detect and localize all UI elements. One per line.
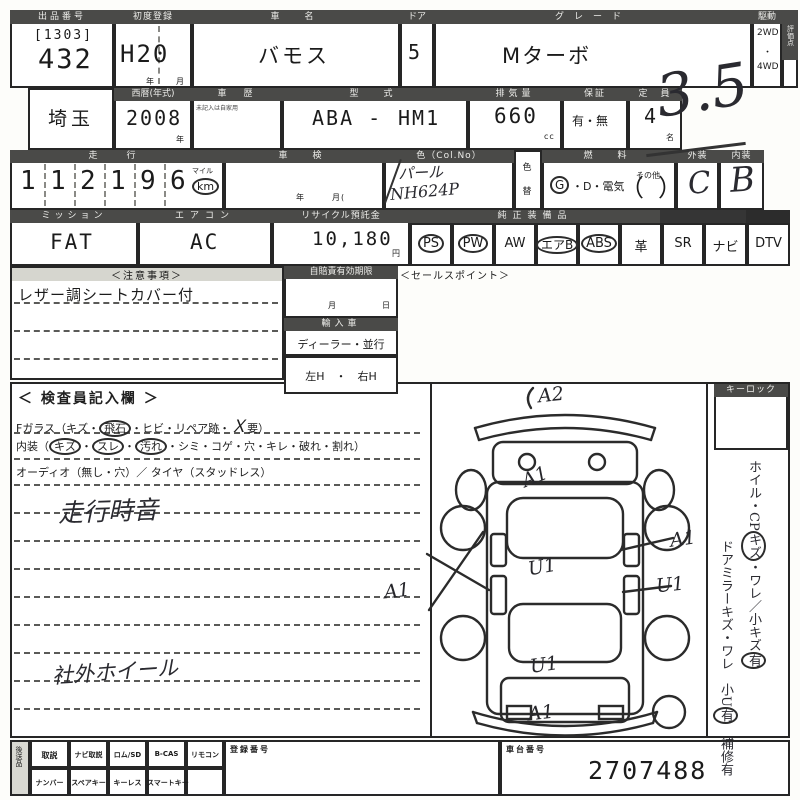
annotation-u1-right: U1 (655, 573, 685, 598)
grade-header: グレード (434, 10, 752, 24)
odometer-digit-4: 1 (110, 166, 128, 196)
import-value: ディーラー・並行 (284, 336, 398, 352)
mileage-header: 走 行 (10, 150, 224, 163)
prefecture-value: 埼玉 (48, 104, 94, 131)
rear-left-wheel (441, 616, 485, 660)
displacement-value: 660 (494, 104, 538, 128)
a2-paren-stroke (528, 388, 533, 408)
insurance-month: 月 (328, 300, 337, 311)
first-registration-header: 初度登録 (114, 10, 192, 24)
history-header: 車 歴 (192, 88, 282, 101)
equipment-header: 純正装備品 (410, 210, 660, 223)
odometer-digit-1: 1 (20, 166, 38, 196)
lot-header: 出品番号 (10, 10, 114, 24)
glass-line-mid: ・ヒビ・リペア跡・ (131, 422, 230, 435)
insurance-day: 日 (382, 300, 391, 311)
door-value: 5 (408, 40, 422, 64)
model-code-prefix: ABA - (312, 106, 382, 130)
recycle-fee-header: リサイクル預託金 (272, 210, 410, 223)
odometer-digit-5: 9 (140, 166, 158, 196)
annotation-u1-rear: U1 (529, 652, 560, 678)
leader-line-right-a1 (621, 538, 673, 550)
equipment-dtv: DTV (755, 236, 782, 251)
mile-label: マイル (192, 166, 213, 176)
rear-window (509, 604, 621, 662)
handle-value: 左H ・ 右H (284, 368, 398, 384)
warranty-header: 保証 (562, 88, 628, 101)
bottom-item-navi-manual: ナビ取説 (69, 750, 108, 760)
key-lock-header: キーロック (714, 384, 788, 397)
bottom-item-spare-key: スペアキー (69, 778, 108, 788)
bottom-item-keyless: キーレス (108, 778, 147, 788)
drive-2wd: 2WD (757, 28, 779, 38)
drive-4wd: 4WD (757, 62, 779, 72)
interior-circled-dirt: 汚れ (135, 438, 167, 455)
color-change-top: 色 (514, 160, 540, 173)
send-later-label: 後送品 (14, 746, 24, 792)
equipment-aw: AW (504, 236, 525, 251)
capacity-value: 4 (644, 104, 658, 128)
score-value: 3.5 (651, 49, 753, 131)
rear-right-wheel (645, 616, 689, 660)
hand-note-driving-noise: 走行時音 (57, 490, 158, 529)
inspection-divider-right (706, 382, 708, 738)
car-top-view-diagram (425, 382, 705, 738)
glass-circled-flying-stone: 飛石 (99, 420, 131, 437)
bottom-item-rom-sd: ロム/SD (108, 750, 147, 760)
car-name-header: 車 名 (192, 10, 400, 24)
equipment-sr: SR (674, 236, 691, 251)
interior-grade-value: B (729, 159, 757, 201)
right-mirror (644, 470, 674, 510)
equipment-navi: ナビ (712, 240, 738, 255)
annotation-a1-right: A1 (669, 526, 698, 551)
equipment-header-dark-1 (660, 210, 746, 223)
sidebar-circled-yes-2: 有 (713, 707, 738, 724)
color-change-bottom: 替 (514, 184, 540, 197)
aircon-value: AC (190, 230, 219, 254)
model-year-header: 西暦(年式) (114, 88, 192, 101)
chassis-number-label: 車台番号 (506, 744, 546, 755)
registration-number-label: 登録番号 (230, 744, 270, 755)
auction-sheet: 出品番号 [1303] 432 初度登録 H20 年 月 車 名 バモス ドア … (0, 0, 800, 800)
bottom-item-remote: リモコン (186, 750, 224, 760)
odometer-digit-2: 1 (50, 166, 68, 196)
insurance-header: 自賠責有効期限 (284, 266, 398, 279)
displacement-header: 排気量 (468, 88, 562, 101)
transmission-header: ミッション (10, 210, 138, 223)
audio-tire-line: オーディオ（無し・穴）／ タイヤ（スタッドレス） (16, 464, 271, 480)
windshield (507, 498, 623, 558)
history-note: 未記入は自家用 (196, 103, 238, 112)
notice-line-1: レザー調シートカバー付 (18, 284, 194, 305)
notice-header: ＜注意事項＞ (12, 268, 282, 281)
equipment-ps: PS (418, 234, 444, 253)
score-header: 評価点 (782, 10, 798, 60)
fuel-other: その他 (636, 170, 660, 181)
model-year-unit: 年 (176, 134, 185, 145)
front-left-wheel (441, 506, 485, 550)
car-name-value: バモス (258, 40, 330, 70)
interior-circled-scratch: キズ (49, 438, 81, 455)
glass-line-suffix: 要） (247, 422, 269, 435)
glass-line-prefix: Fガラス（キズ・ (16, 422, 99, 435)
interior-line-open: 内装（ (16, 440, 49, 453)
model-year-value: 2008 (126, 106, 182, 130)
bottom-item-plate: ナンバー (30, 778, 69, 788)
warranty-value: 有・無 (572, 112, 608, 129)
bottom-item-manual: 取説 (30, 750, 69, 761)
odometer-digit-6: 6 (170, 166, 188, 196)
glass-hand-x: Ｘ (230, 417, 247, 437)
transmission-value: FAT (50, 230, 94, 254)
drive-header: 駆動 (752, 10, 782, 24)
first-registration-year-unit: 年 (146, 76, 155, 87)
sidebar-circled-yes-1: 有 (741, 652, 766, 669)
shaken-header: 車 検 (224, 150, 384, 163)
recycle-fee-unit: 円 (392, 248, 401, 259)
equipment-pw: PW (458, 234, 489, 253)
import-header: 輸入車 (284, 318, 398, 331)
model-code-header: 型 式 (282, 88, 468, 101)
exterior-grade-value: C (686, 165, 713, 202)
chassis-number-value: 2707488 (588, 756, 707, 785)
bottom-item-bcas: B-CAS (147, 750, 186, 758)
lot-bracket: [1303] (34, 28, 93, 43)
sidebar-note-column-2: ドアミラーキズ・ワレ 小U有 補修有 (716, 540, 735, 740)
drive-dot: ・ (763, 45, 772, 58)
fuel-options: ・D・電気 (572, 178, 624, 194)
leader-line-left-a1-2 (427, 554, 489, 590)
left-mirror (456, 470, 486, 510)
inspector-title: ＜ 検査員記入欄 ＞ (18, 388, 160, 408)
equipment-header-dark-2 (746, 210, 790, 223)
annotation-a1-bottom: A1 (527, 701, 555, 726)
capacity-unit: 名 (666, 132, 675, 143)
shaken-year-unit: 年 (296, 192, 305, 203)
model-code-value: HM1 (398, 106, 440, 130)
grade-value: Mターボ (502, 40, 591, 70)
annotation-a2: A2 (537, 383, 565, 408)
aircon-header: エアコン (138, 210, 272, 223)
first-registration-value: H20 (120, 40, 169, 68)
equipment-airbag: エアB (536, 236, 578, 254)
equipment-abs: ABS (581, 234, 617, 253)
fuel-paren-close: ） (658, 168, 682, 203)
first-registration-month-unit: 月 (176, 76, 185, 87)
annotation-a1-left: A1 (383, 579, 411, 604)
interior-line-rest: ・シミ・コゲ・穴・キレ・破れ・割れ） (167, 440, 365, 453)
equipment-leather: 革 (634, 240, 647, 255)
lot-number: 432 (38, 44, 93, 75)
odometer-digit-3: 2 (80, 166, 98, 196)
interior-circled-scuff: スレ (92, 438, 124, 455)
km-label: km (192, 178, 219, 195)
bottom-item-smart-key: スマートキー (147, 778, 186, 788)
sidebar-circled-scratch: キズ (741, 531, 766, 561)
shaken-month-unit: 月( (332, 192, 345, 203)
recycle-fee-value: 10,180 (312, 228, 393, 250)
door-header: ドア (400, 10, 434, 24)
color-change-cell (514, 150, 542, 210)
sales-point-label: ＜セールスポイント＞ (400, 267, 510, 282)
color-header: 色（Col.No） (384, 150, 514, 163)
sidebar-note-column-1: ホイル・CPキズ・ワレ／小キズ有 (744, 460, 763, 730)
displacement-unit: cc (544, 132, 555, 141)
